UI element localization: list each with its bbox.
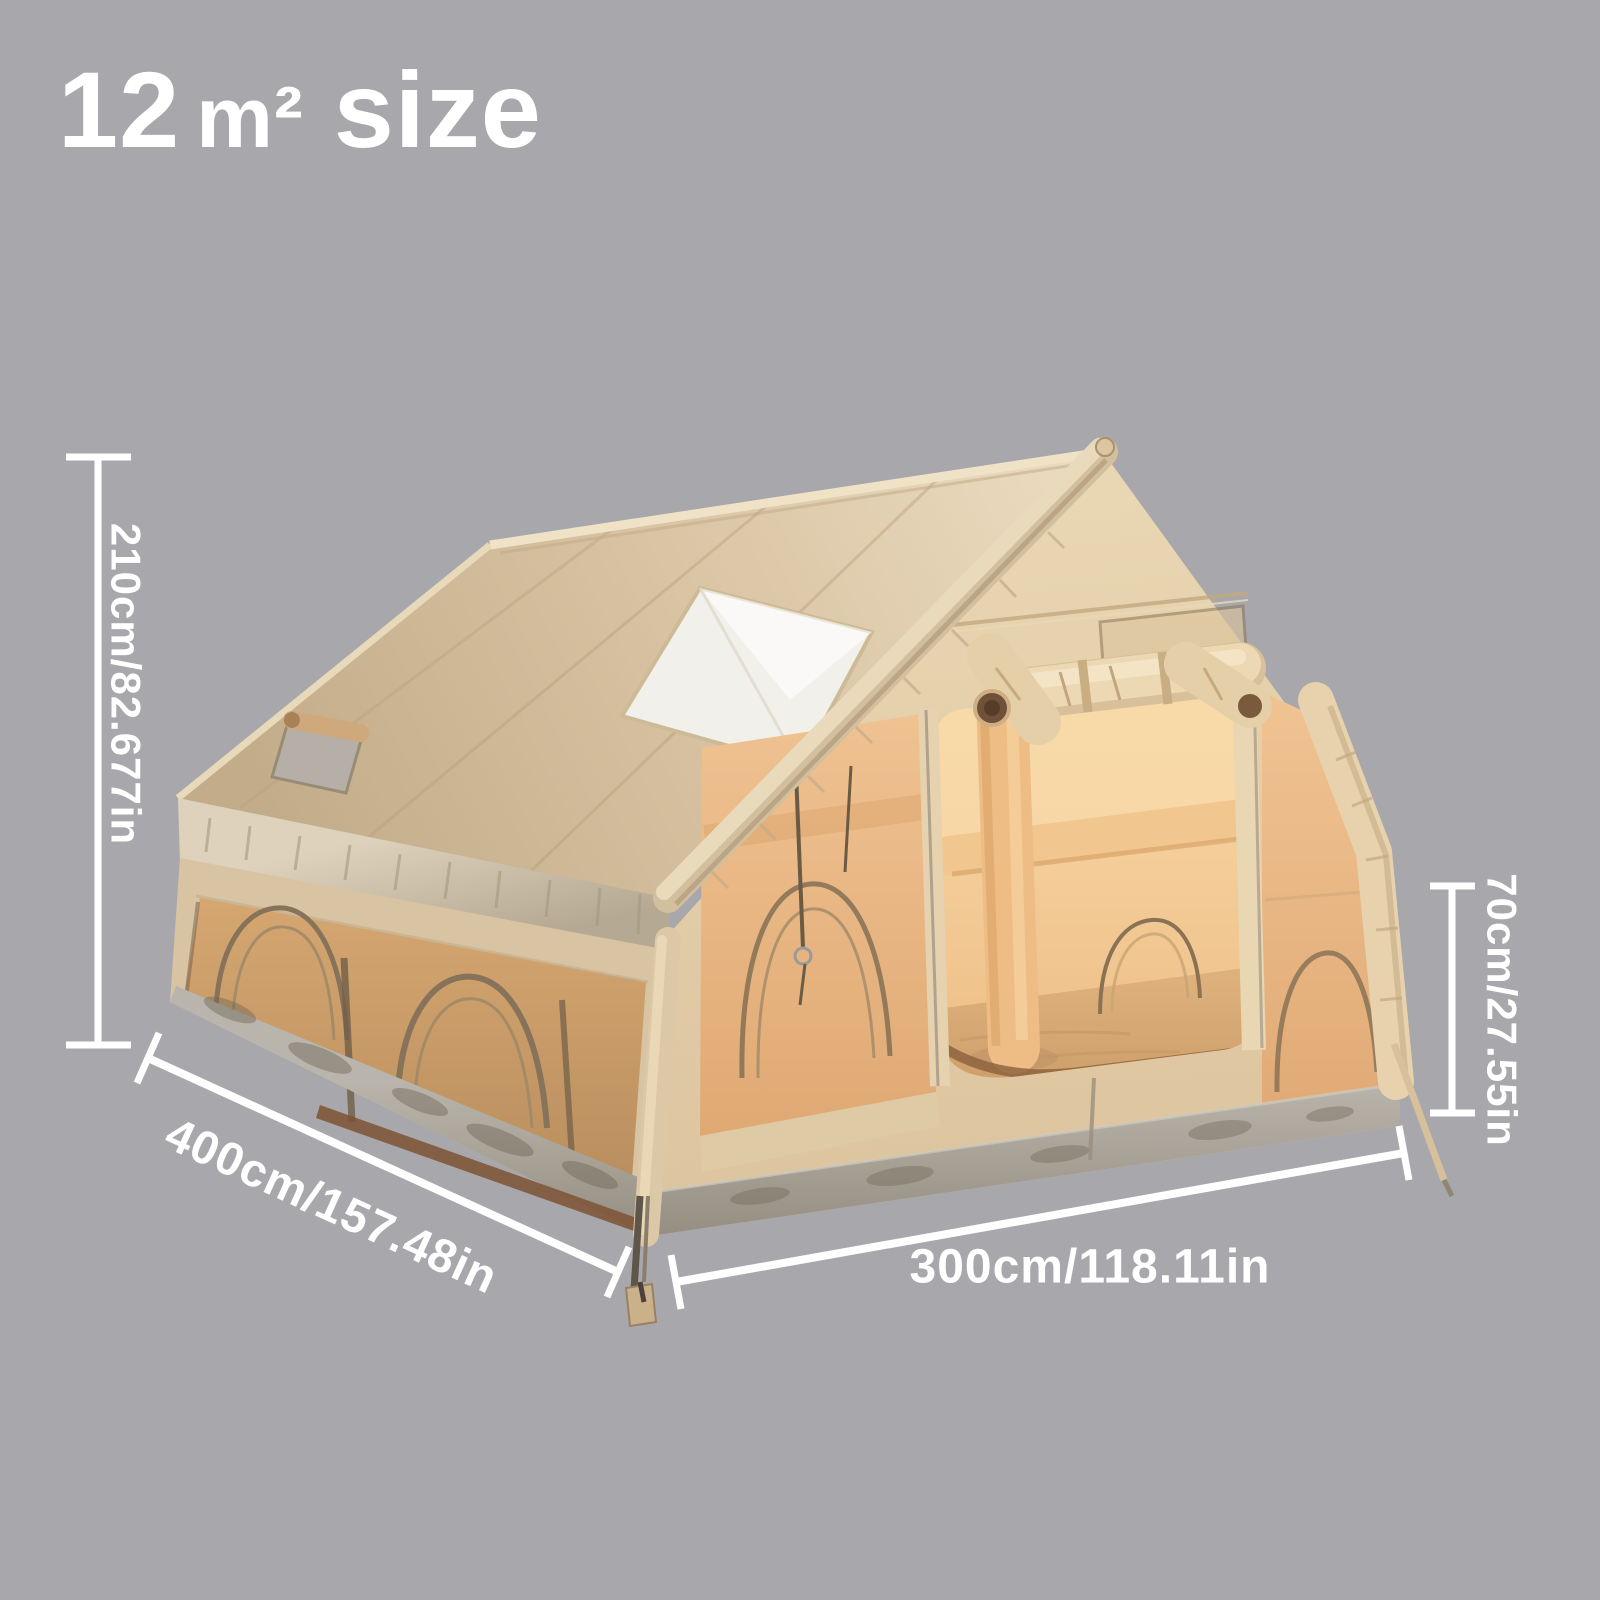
tent-product-image: 210cm/82.677in 400cm/157.48in 300cm/118.… (0, 0, 1600, 1600)
dimension-label-height: 210cm/82.677in (103, 523, 150, 845)
door-frame-right (1244, 680, 1254, 1050)
dimension-wall-height: 70cm/27.55in (1430, 873, 1526, 1147)
dimension-label-wall-height: 70cm/27.55in (1479, 873, 1526, 1147)
product-size-card: 12m²size (0, 0, 1600, 1600)
guy-rope (1394, 1044, 1452, 1196)
front-mesh-panel-left (700, 714, 940, 1172)
door-frame-left (928, 708, 940, 1086)
roof-vent-window (272, 712, 362, 793)
dimension-label-width: 300cm/118.11in (910, 1241, 1271, 1294)
dimension-height: 210cm/82.677in (66, 457, 150, 1045)
peak-cap (1096, 438, 1114, 456)
